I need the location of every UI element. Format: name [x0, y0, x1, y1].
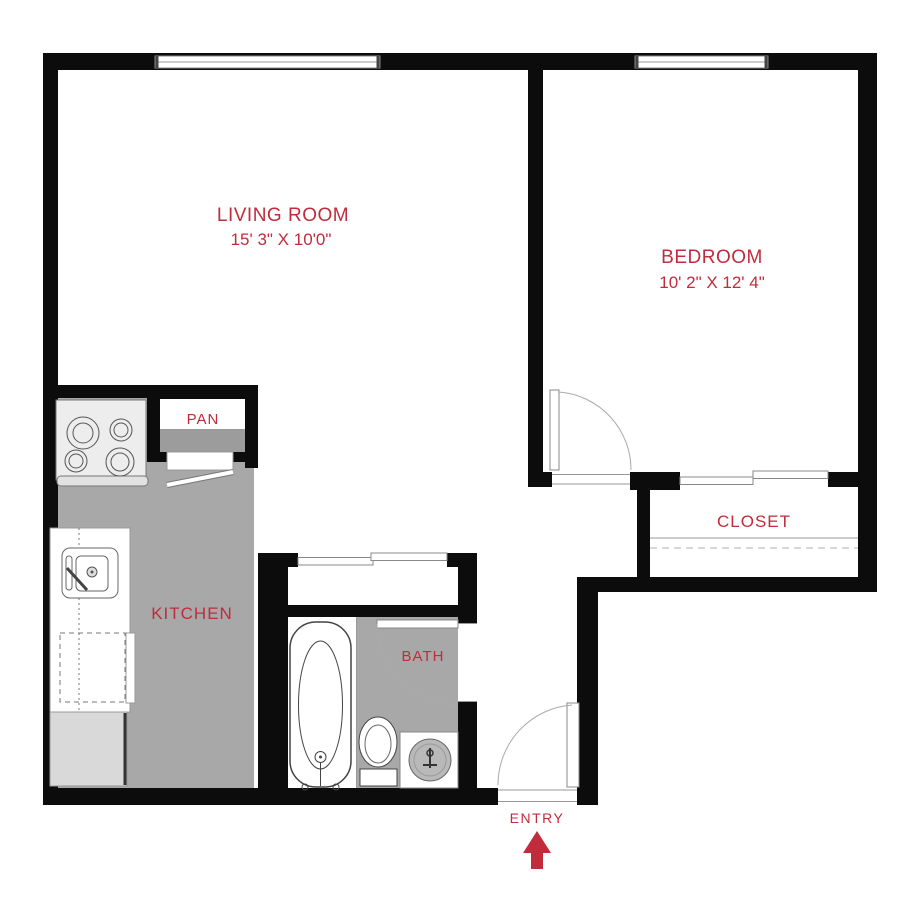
wall-right [858, 53, 877, 592]
hall-closet-interior [288, 567, 458, 605]
wall-entry-right [577, 577, 598, 805]
wall-bedroom-south-a [528, 472, 552, 487]
stove [56, 400, 148, 486]
counter-end-panel [126, 633, 135, 703]
bathtub [290, 622, 351, 790]
vanity-sink [400, 732, 458, 788]
hall-closet-slider-right [371, 553, 447, 561]
bedroom-closet-slider-right [753, 471, 828, 479]
entry-doorway-threshold [498, 788, 577, 805]
wall-living-bedroom-divider [528, 70, 543, 472]
bath-doorway-gap [458, 623, 477, 702]
bedroom-window [635, 56, 768, 68]
bedroom-door [550, 390, 631, 470]
entry-label: ENTRY [510, 810, 565, 826]
bath-label: BATH [402, 648, 445, 665]
wall-closet-left-stub [637, 487, 650, 577]
pantry-shelf [160, 430, 245, 452]
wall-closet-bottom [577, 577, 877, 592]
closet-label: CLOSET [717, 512, 791, 531]
wall-bedroom-south-c [828, 472, 877, 487]
bedroom-dimensions: 10' 2" X 12' 4" [659, 273, 765, 292]
bedroom-label: BEDROOM [661, 247, 763, 268]
pantry-label: PAN [187, 411, 220, 428]
bedroom-closet-slider-left [680, 477, 753, 485]
kitchen-sink [62, 548, 118, 598]
floor-plan: LIVING ROOM 15' 3" X 10'0" BEDROOM 10' 2… [0, 0, 900, 900]
toilet [359, 717, 397, 786]
pantry-doorway [167, 452, 233, 470]
floor-plan-drawing: LIVING ROOM 15' 3" X 10'0" BEDROOM 10' 2… [0, 0, 900, 900]
bedroom-doorway-threshold [552, 472, 630, 487]
living-room-label: LIVING ROOM [217, 205, 349, 226]
entry-door [498, 703, 579, 787]
refrigerator [50, 712, 127, 786]
entry-arrow-icon [523, 831, 551, 869]
living-room-window [155, 56, 380, 68]
kitchen-label: KITCHEN [151, 604, 233, 623]
hall-closet-slider-left [298, 558, 373, 566]
living-room-dimensions: 15' 3" X 10'0" [231, 230, 332, 249]
